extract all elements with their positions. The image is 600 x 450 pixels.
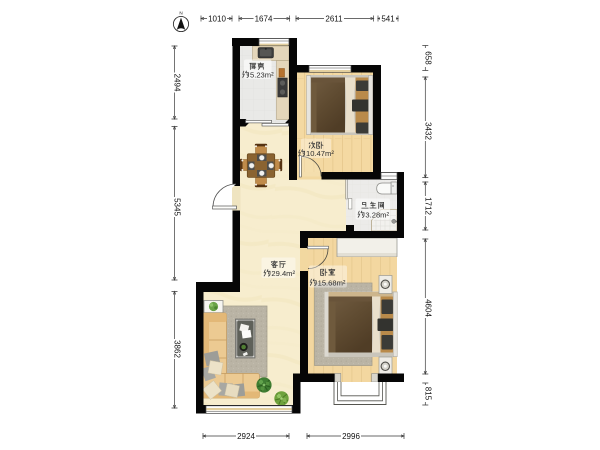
svg-text:3.28m²: 3.28m² bbox=[365, 210, 389, 219]
svg-text:815: 815 bbox=[423, 387, 432, 401]
svg-text:5.23m²: 5.23m² bbox=[250, 70, 274, 79]
svg-text:541: 541 bbox=[381, 14, 395, 23]
svg-text:10.47m²: 10.47m² bbox=[306, 149, 334, 158]
svg-text:29.4m²: 29.4m² bbox=[271, 269, 295, 278]
svg-text:3862: 3862 bbox=[173, 340, 182, 358]
svg-text:658: 658 bbox=[423, 51, 432, 65]
svg-text:2494: 2494 bbox=[173, 74, 182, 92]
svg-text:1712: 1712 bbox=[423, 197, 432, 215]
svg-text:3432: 3432 bbox=[423, 122, 432, 140]
svg-text:2924: 2924 bbox=[237, 432, 255, 441]
svg-text:2996: 2996 bbox=[342, 432, 360, 441]
svg-text:N: N bbox=[179, 11, 182, 16]
svg-text:1010: 1010 bbox=[208, 14, 226, 23]
svg-text:4604: 4604 bbox=[423, 299, 432, 317]
svg-text:5345: 5345 bbox=[173, 198, 182, 216]
svg-text:2611: 2611 bbox=[325, 14, 343, 23]
svg-text:1674: 1674 bbox=[255, 14, 273, 23]
svg-text:15.68m²: 15.68m² bbox=[318, 278, 346, 287]
